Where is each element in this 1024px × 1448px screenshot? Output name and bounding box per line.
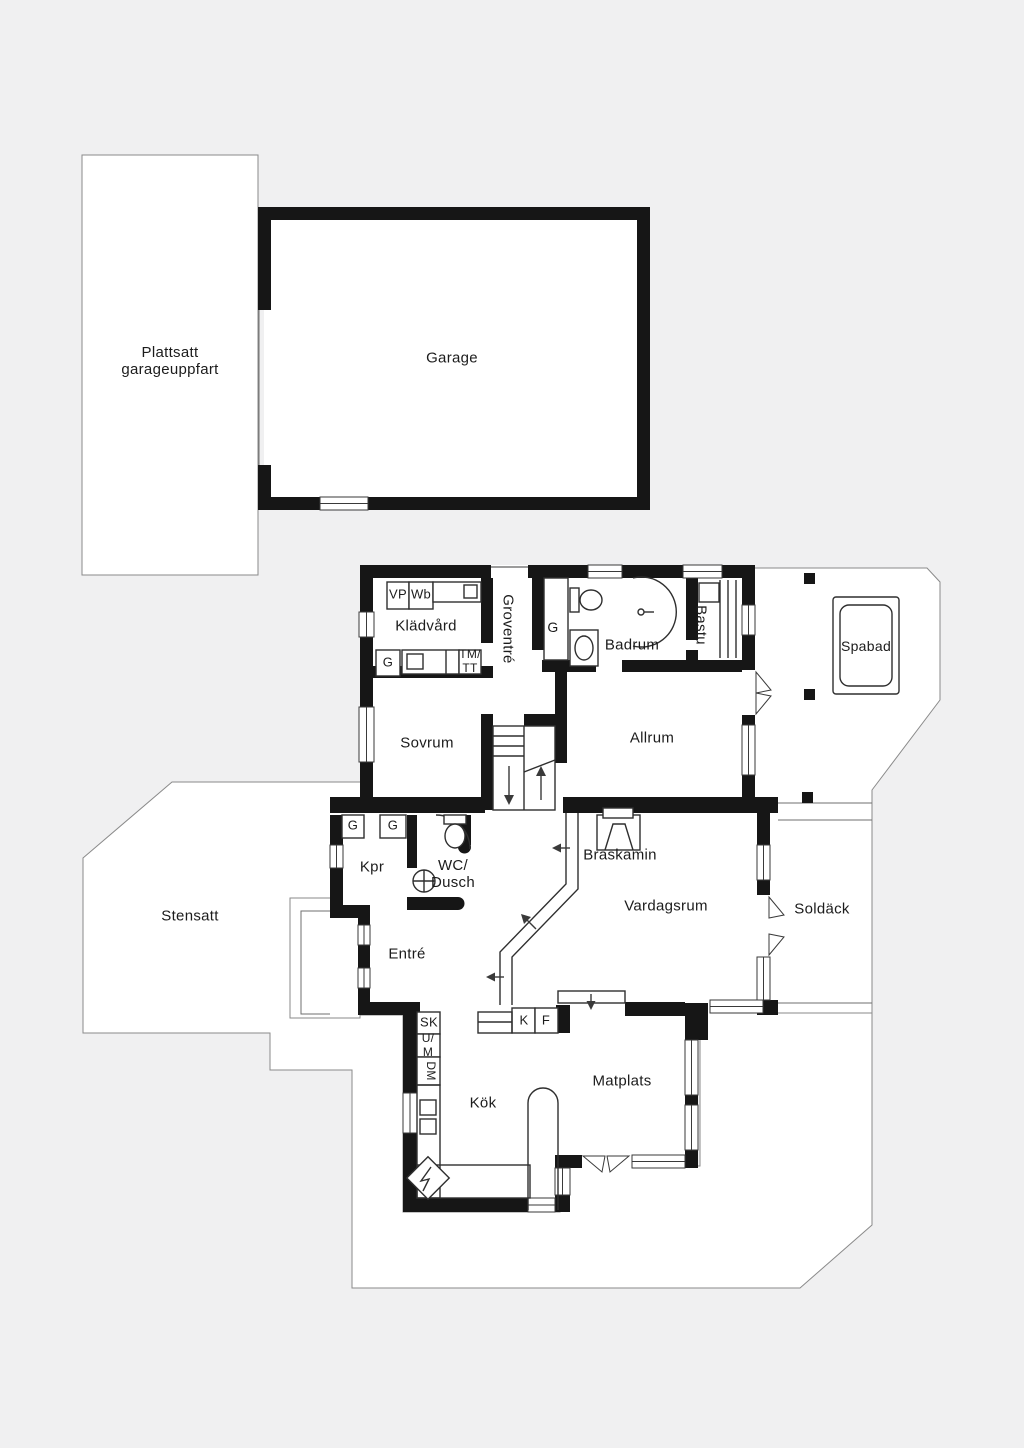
label-entre: Entré: [388, 945, 425, 962]
deck-post: [802, 792, 813, 803]
label-vp: VP: [389, 588, 407, 603]
label-garage: Garage: [426, 349, 478, 366]
floor-plan: Plattsatt garageuppfartGarageKlädvårdGro…: [0, 0, 1024, 1448]
label-badrum: Badrum: [605, 636, 659, 653]
label-k: K: [520, 1014, 529, 1029]
label-kok: Kök: [470, 1094, 497, 1111]
toilet-icon: [570, 588, 602, 612]
label-dm: DM: [423, 1061, 437, 1080]
label-wc-dusch: WC/ Dusch: [431, 857, 475, 892]
deck-post: [804, 573, 815, 584]
label-allrum: Allrum: [630, 729, 674, 746]
label-vardagsrum: Vardagsrum: [624, 897, 708, 914]
label-braskamin: Braskamin: [583, 846, 657, 863]
window: [588, 565, 622, 578]
label-stensatt: Stensatt: [161, 907, 218, 924]
window: [358, 968, 370, 988]
window: [683, 565, 722, 578]
label-sovrum: Sovrum: [400, 734, 453, 751]
label-tm-tt: TM/ TT: [459, 648, 481, 676]
window: [685, 1040, 698, 1095]
label-g-kpr-1: G: [348, 819, 358, 834]
label-g-kpr-2: G: [388, 819, 398, 834]
laundry-sink-icon: [402, 650, 459, 674]
window: [359, 707, 374, 762]
window: [757, 957, 770, 1000]
window: [685, 1105, 698, 1150]
window: [710, 1000, 763, 1013]
label-f: F: [542, 1014, 550, 1029]
window: [330, 845, 343, 868]
window: [742, 725, 755, 775]
label-kladvard: Klädvård: [395, 617, 457, 634]
label-bastu: Bastu: [692, 605, 709, 645]
window: [742, 605, 755, 635]
label-wb: Wb: [411, 588, 431, 603]
window: [403, 1093, 417, 1133]
label-kpr: Kpr: [360, 858, 384, 875]
laundry-counter-icon: [433, 582, 481, 602]
label-g-groventre: G: [547, 619, 558, 635]
bathroom-sink-icon: [570, 630, 598, 666]
label-matplats: Matplats: [592, 1072, 651, 1089]
label-groventre: Groventré: [499, 594, 516, 663]
fireplace-icon: [597, 808, 640, 850]
label-soldack: Soldäck: [794, 900, 849, 917]
label-plattsatt-garageuppfart: Plattsatt garageuppfart: [121, 344, 218, 379]
window: [528, 1198, 555, 1212]
window: [359, 612, 374, 637]
sauna-heater-icon: [699, 583, 719, 602]
garage-window: [320, 497, 368, 510]
label-sk: SK: [420, 1016, 438, 1031]
label-u-m: U/ M: [422, 1032, 435, 1060]
window: [757, 845, 770, 880]
window: [555, 1168, 570, 1195]
toilet-icon: [444, 815, 466, 848]
floor-plan-drawing: [0, 0, 1024, 1448]
label-spabad: Spabad: [841, 638, 891, 654]
label-g-kladvard: G: [383, 656, 393, 671]
window: [358, 925, 370, 945]
deck-post: [804, 689, 815, 700]
window: [632, 1155, 685, 1168]
